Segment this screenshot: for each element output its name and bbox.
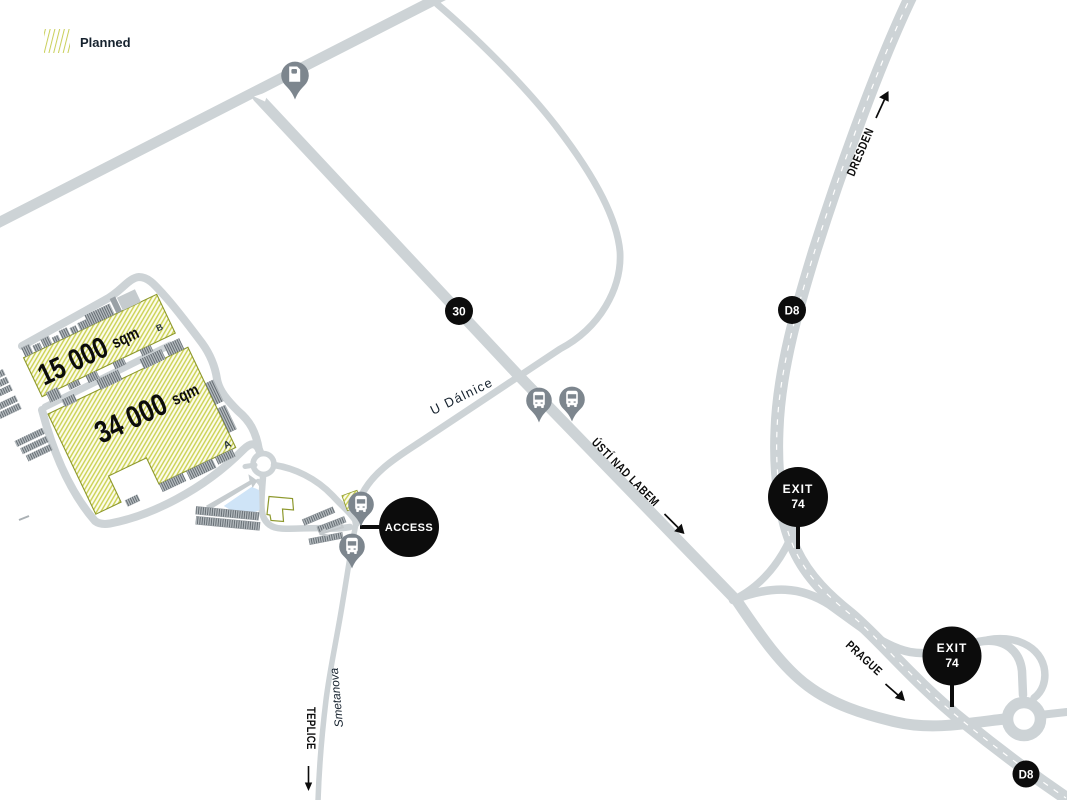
svg-text:D8: D8 [1019,770,1034,782]
svg-text:74: 74 [945,656,959,670]
svg-text:74: 74 [791,497,805,511]
svg-text:Planned: Planned [80,35,131,50]
svg-text:ACCESS: ACCESS [385,522,433,534]
svg-text:TEPLICE: TEPLICE [304,707,317,750]
svg-text:EXIT: EXIT [937,641,968,655]
svg-text:D8: D8 [785,306,800,318]
svg-text:30: 30 [452,305,466,319]
svg-text:EXIT: EXIT [783,482,814,496]
